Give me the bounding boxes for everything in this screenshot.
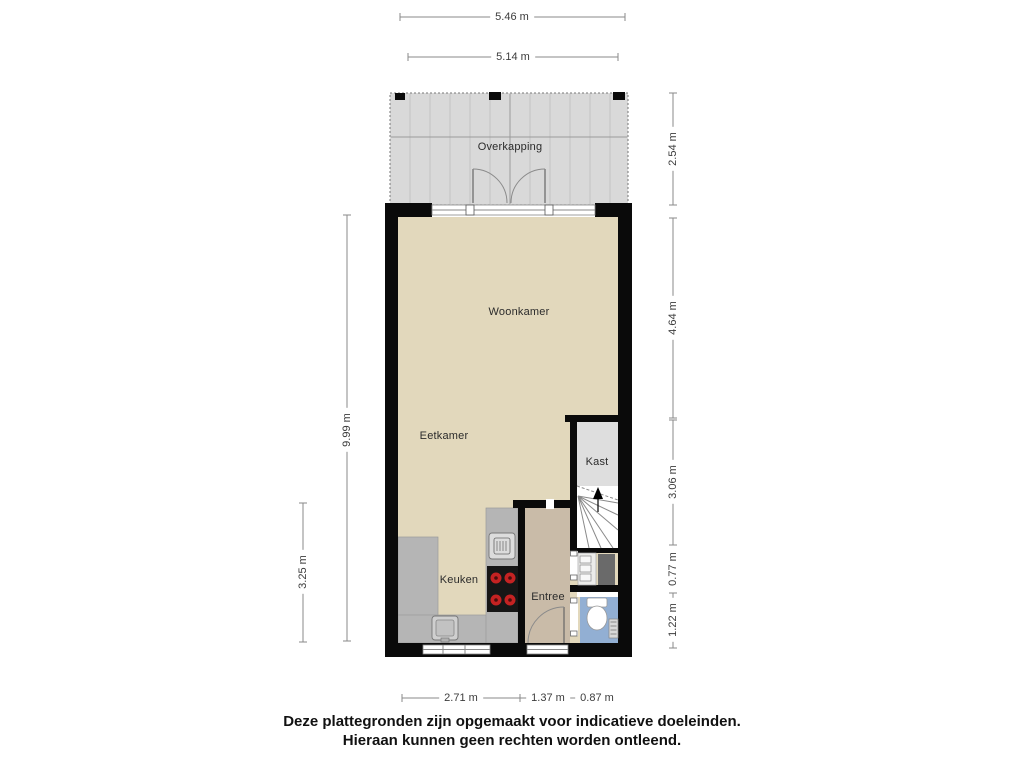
dim-label-top-inner: 5.14 m: [491, 51, 535, 63]
floorplan-graphics: [0, 0, 1024, 768]
toilet-wall-gap: [577, 592, 618, 597]
radiator-icon: [609, 619, 618, 638]
entree-opening: [546, 499, 554, 509]
dim-label-right-toilet: 1.22 m: [667, 598, 679, 642]
kitchen-window-icon: [423, 645, 490, 654]
room-label-entree: Entree: [531, 591, 565, 603]
front-door-threshold: [527, 645, 568, 654]
dim-label-bottom-toilet: 0.87 m: [575, 692, 619, 704]
meterkast-door: [570, 551, 578, 580]
dishwasher-icon: [489, 533, 515, 559]
disclaimer-line-2: Hieraan kunnen geen rechten worden ontle…: [0, 731, 1024, 750]
room-label-kast: Kast: [586, 456, 609, 468]
dim-label-top-outer: 5.46 m: [490, 11, 534, 23]
dim-label-left-interior: 9.99 m: [341, 408, 353, 452]
toilet-icon: [587, 598, 607, 630]
room-label-eetkamer: Eetkamer: [420, 430, 469, 442]
kast-floor: [577, 422, 618, 486]
cooktop-icon: [487, 566, 518, 612]
room-label-keuken: Keuken: [440, 574, 479, 586]
back-window-icon: [432, 205, 595, 215]
toilet-door: [570, 598, 578, 636]
floorplan-page: Overkapping Woonkamer Eetkamer Kast Keuk…: [0, 0, 1024, 768]
dim-label-right-meterkast: 0.77 m: [667, 547, 679, 591]
entree-floor: [525, 508, 570, 643]
dim-label-left-kitchen: 3.25 m: [297, 550, 309, 594]
dim-label-right-woonkamer: 4.64 m: [667, 296, 679, 340]
room-label-overkapping: Overkapping: [478, 141, 543, 153]
dim-label-bottom-entree: 1.37 m: [526, 692, 570, 704]
dim-label-right-overkapping: 2.54 m: [667, 127, 679, 171]
disclaimer-line-1: Deze plattegronden zijn opgemaakt voor i…: [0, 712, 1024, 731]
sink-icon: [432, 616, 458, 642]
dim-label-right-stairs: 3.06 m: [667, 460, 679, 504]
dim-label-bottom-kitchen: 2.71 m: [439, 692, 483, 704]
room-label-woonkamer: Woonkamer: [489, 306, 550, 318]
disclaimer-text: Deze plattegronden zijn opgemaakt voor i…: [0, 712, 1024, 750]
